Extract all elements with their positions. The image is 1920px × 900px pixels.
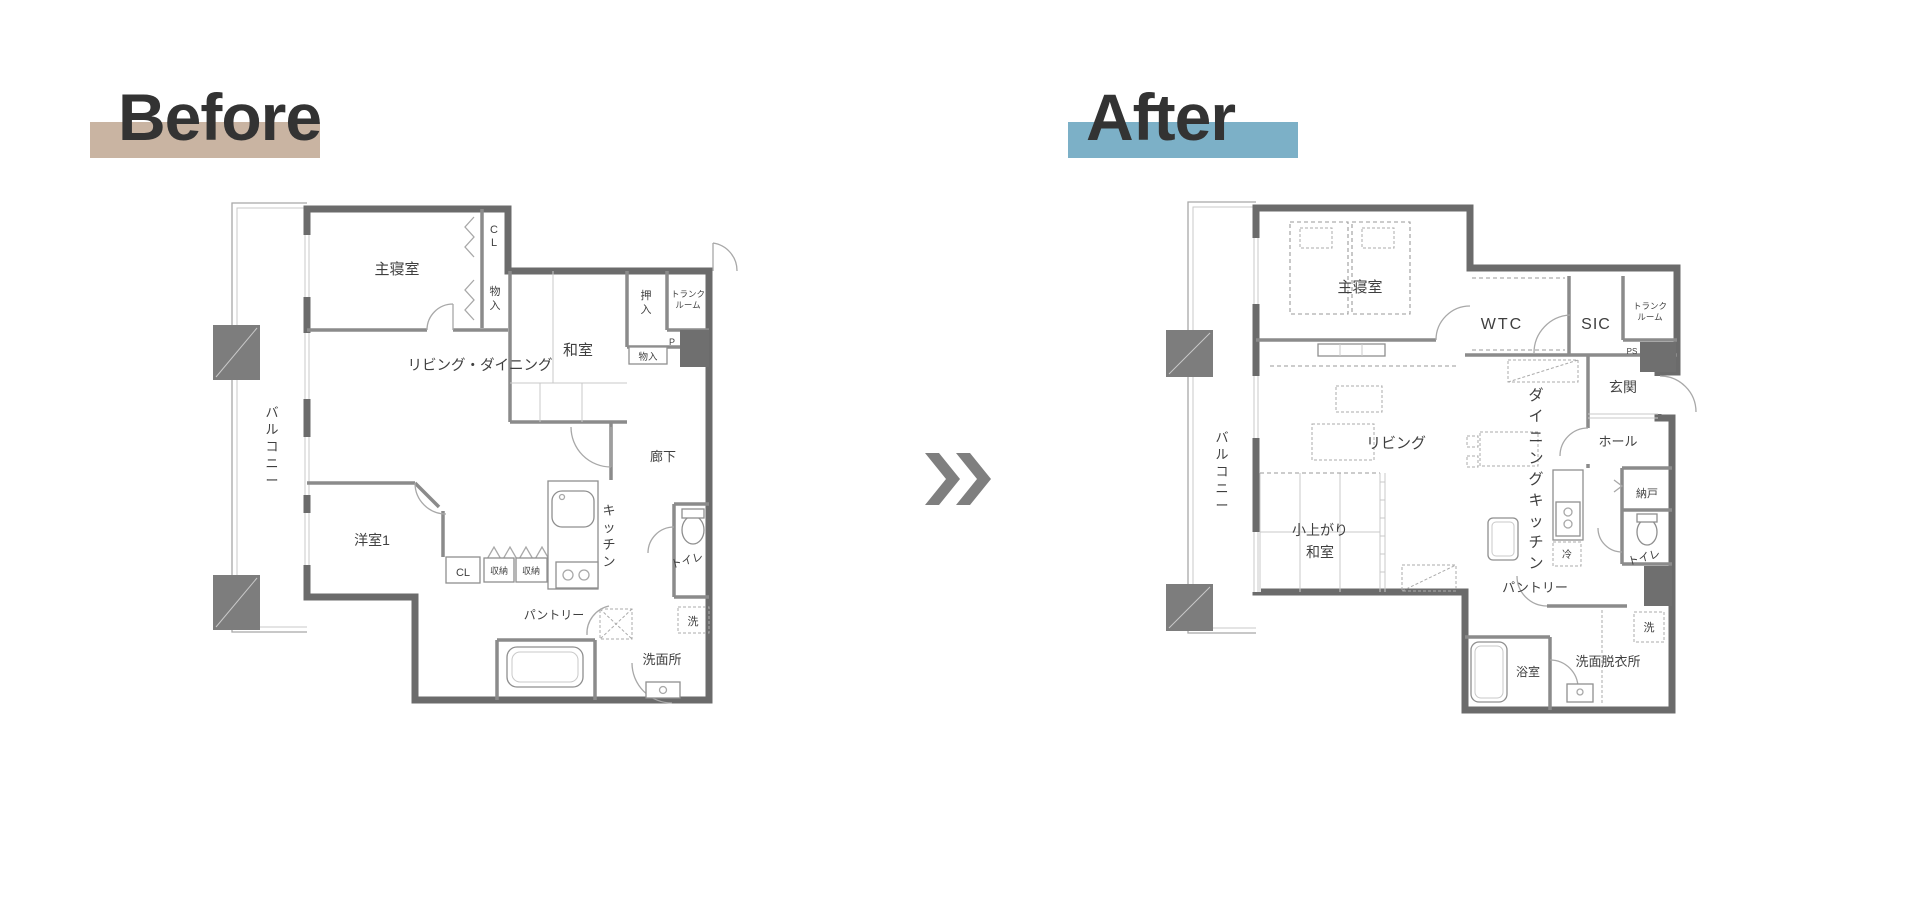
room-label-master-bedroom: 主寝室: [374, 260, 419, 278]
door-arc-icon: [427, 304, 453, 330]
room-label-kitchen: キッチン: [602, 503, 615, 569]
pillow-icon: [1300, 228, 1332, 248]
after-walls: [1251, 208, 1677, 710]
stove-icon: [556, 562, 598, 588]
bathtub-icon: [507, 647, 583, 687]
door-arc-icon: [1598, 528, 1622, 552]
room-label-trunk-2: ルーム: [1637, 312, 1662, 322]
bed-icon: [1290, 222, 1348, 314]
room-label-ps: PS: [1627, 347, 1638, 356]
pillow-icon: [1362, 228, 1394, 248]
room-label-storage-room: 納戸: [1636, 487, 1658, 500]
tv-board: [1318, 344, 1385, 356]
room-label-tatami-2: 和室: [1306, 544, 1334, 560]
room-label-ps: P: [669, 337, 675, 347]
before-title-block: Before: [118, 84, 321, 150]
room-label-washroom: 洗面所: [642, 652, 681, 667]
room-label-storage-box2: 収納: [522, 565, 540, 576]
ps-shaft: [1640, 342, 1676, 372]
bifold-door-icon: [465, 280, 474, 320]
room-label-cl-bottom: CL: [456, 567, 470, 579]
room-label-storage-small: 物入: [638, 351, 658, 363]
room-label-bathroom: 浴室: [1516, 664, 1540, 679]
room-label-hall: ホール: [1598, 434, 1637, 449]
chair-icon: [1467, 436, 1478, 447]
before-title: Before: [118, 84, 321, 150]
door-arc-icon: [1534, 315, 1570, 353]
toilet-tank: [1637, 514, 1657, 522]
bed-icon: [1352, 222, 1410, 314]
toilet-icon: [1637, 519, 1657, 545]
before-to-after-arrow: [925, 452, 995, 507]
entry-door-arc-icon: [713, 243, 737, 271]
room-label-living-dining: リビング・ダイニング: [408, 357, 553, 374]
room-label-western-room: 洋室1: [354, 532, 390, 548]
room-label-fridge: 冷: [1562, 548, 1572, 561]
before-floorplan: バルコニー 主寝室 CL 物入 和室 押入 トランク ルーム P 物入 リビング…: [210, 185, 740, 710]
chevron-right-icon: [925, 453, 960, 505]
room-label-oshiire: 押入: [641, 288, 652, 316]
wall-block: [1644, 566, 1672, 606]
before-fixtures: [446, 271, 709, 698]
room-label-entrance: 玄関: [1609, 379, 1637, 395]
door-arc-icon: [571, 427, 611, 467]
chevron-right-icon: [956, 453, 991, 505]
room-label-trunk-1: トランク: [671, 289, 705, 299]
after-balcony: [1166, 202, 1256, 633]
door-arc-icon: [648, 527, 674, 553]
room-label-living: リビング: [1366, 435, 1426, 452]
room-label-balcony: バルコニー: [265, 405, 278, 488]
door-arc-icon: [1436, 306, 1470, 340]
room-label-pantry: パントリー: [524, 608, 585, 622]
after-title-block: After: [1086, 84, 1235, 150]
room-label-hallway: 廊下: [650, 449, 676, 464]
door-arc-icon: [1560, 428, 1588, 456]
room-label-sic: SIC: [1581, 316, 1611, 333]
room-label-dining-kitchen: ダイニングキッチン: [1528, 387, 1543, 572]
before-walls: [302, 209, 709, 700]
toilet-tank: [682, 509, 704, 518]
chair-icon: [1467, 456, 1478, 467]
room-label-laundry: 洗: [688, 615, 699, 628]
bifold-door-icon: [465, 217, 474, 257]
bathtub-icon: [1471, 642, 1507, 702]
room-label-tatami-1: 小上がり: [1292, 522, 1348, 538]
before-after-floorplan-page: Before After: [0, 0, 1920, 900]
room-label-master-bedroom: 主寝室: [1337, 278, 1382, 296]
toilet-icon: [682, 516, 704, 544]
after-floorplan: バルコニー 主寝室 WTC SIC トランク ルーム PS 玄関 ホール 納戸 …: [1140, 180, 1715, 725]
door-arc-icon: [587, 606, 609, 635]
room-label-wtc: WTC: [1481, 316, 1523, 333]
room-label-storage-box1: 収納: [490, 565, 508, 576]
room-label-balcony: バルコニー: [1215, 430, 1228, 513]
room-label-pantry: パントリー: [1502, 580, 1568, 595]
tatami-step: [1380, 473, 1385, 592]
room-label-cl-top: CL: [490, 224, 498, 249]
room-label-trunk-1: トランク: [1633, 301, 1667, 311]
room-label-trunk-2: ルーム: [675, 300, 700, 310]
washbasin-icon: [1567, 684, 1593, 702]
kitchen-sink-icon: [552, 491, 594, 527]
room-label-washitsu: 和室: [563, 342, 593, 359]
room-label-storage-top: 物入: [490, 284, 501, 312]
table-icon: [1336, 386, 1382, 412]
room-label-washroom: 洗面脱衣所: [1575, 654, 1640, 669]
washbasin-icon: [646, 682, 680, 698]
before-balcony: [213, 203, 307, 632]
room-label-laundry: 洗: [1644, 621, 1655, 634]
ps-shaft: [680, 330, 709, 367]
entry-door-arc-icon: [1660, 376, 1696, 412]
stove-icon: [1556, 502, 1580, 536]
closet-hanger-lines: [1472, 278, 1565, 350]
sofa-icon: [1312, 424, 1374, 460]
after-title: After: [1086, 84, 1235, 150]
